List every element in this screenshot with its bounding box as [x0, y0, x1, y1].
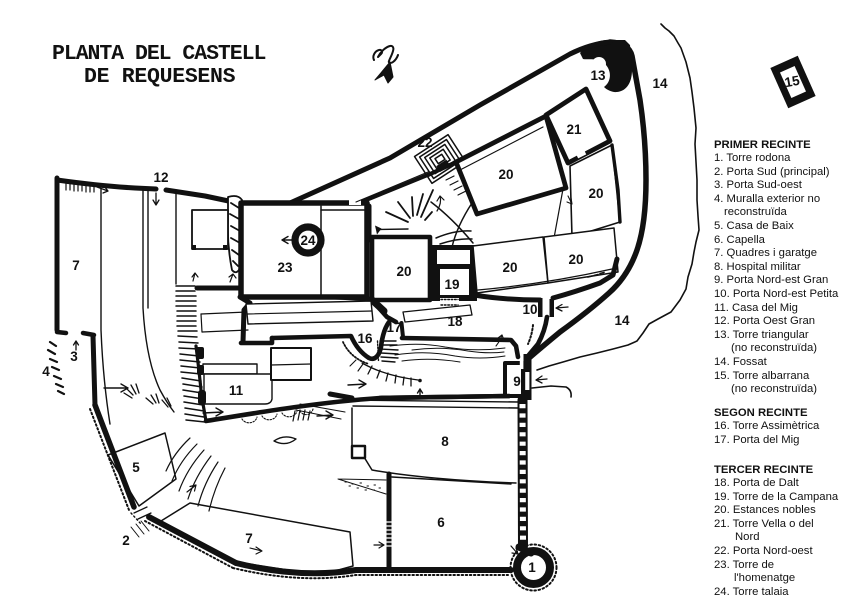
svg-text:13: 13	[590, 68, 606, 83]
svg-text:12: 12	[153, 170, 168, 185]
svg-text:18: 18	[447, 314, 463, 329]
svg-text:14: 14	[652, 76, 668, 91]
svg-text:20: 20	[396, 264, 411, 279]
svg-text:22: 22	[417, 135, 432, 150]
svg-text:4: 4	[42, 364, 50, 379]
svg-text:9: 9	[513, 374, 521, 389]
svg-text:21: 21	[566, 122, 582, 137]
svg-text:23: 23	[277, 260, 293, 275]
svg-text:11: 11	[229, 383, 244, 398]
svg-text:3: 3	[70, 349, 78, 364]
svg-text:8: 8	[441, 434, 449, 449]
svg-text:20: 20	[498, 167, 513, 182]
svg-text:7: 7	[245, 531, 253, 546]
svg-text:10: 10	[522, 302, 537, 317]
svg-text:15: 15	[783, 73, 801, 90]
svg-text:20: 20	[502, 260, 517, 275]
svg-text:7: 7	[72, 258, 80, 273]
svg-text:20: 20	[568, 252, 583, 267]
svg-text:2: 2	[122, 533, 130, 548]
svg-text:14: 14	[614, 313, 630, 328]
svg-text:24: 24	[300, 233, 316, 248]
svg-text:16: 16	[357, 331, 373, 346]
svg-text:6: 6	[437, 515, 445, 530]
svg-text:17: 17	[386, 320, 401, 335]
svg-text:5: 5	[132, 460, 140, 475]
svg-text:1: 1	[528, 560, 536, 575]
svg-text:19: 19	[444, 277, 459, 292]
svg-text:20: 20	[588, 186, 603, 201]
